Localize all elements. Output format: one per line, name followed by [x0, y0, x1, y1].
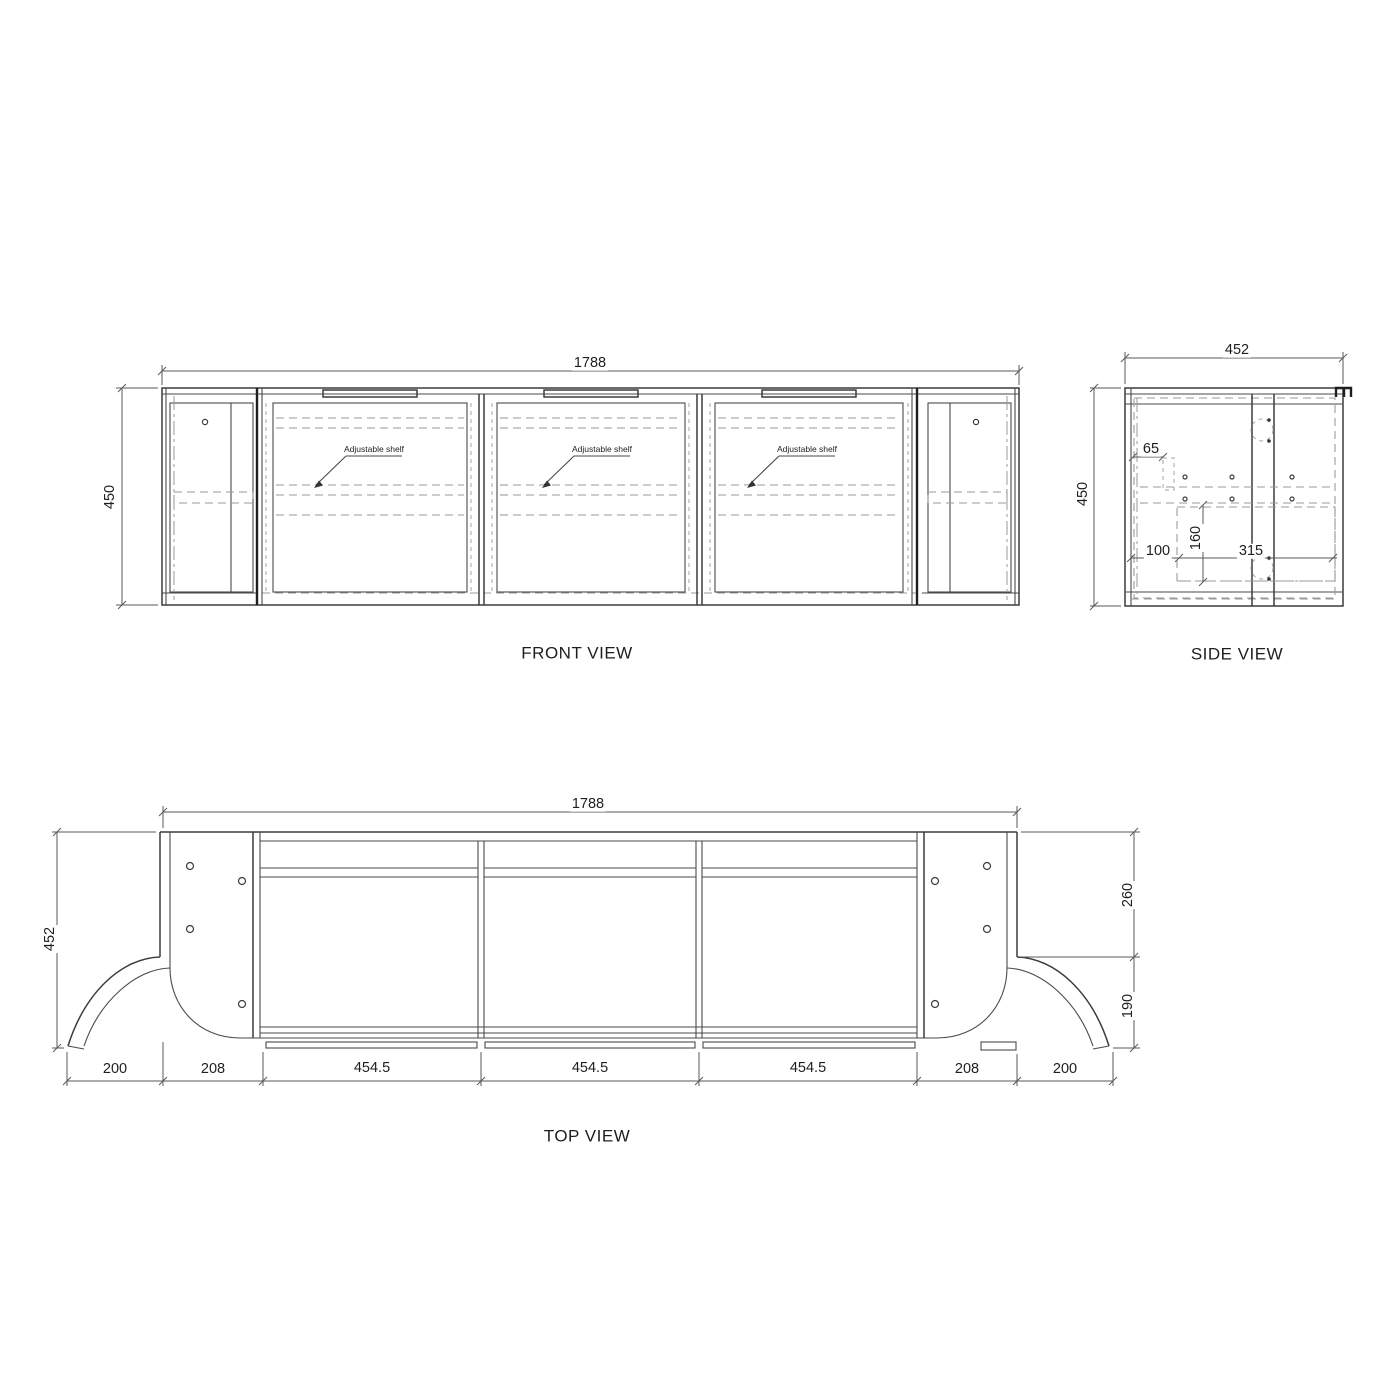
side-160-dim: 160	[1189, 524, 1204, 552]
side-view-title: SIDE VIEW	[1189, 646, 1285, 663]
top-depth-dim: 452	[43, 925, 58, 953]
top-right-upper-dim: 260	[1121, 881, 1136, 909]
side-65-dim: 65	[1141, 442, 1161, 457]
side-dimension-lines	[1090, 352, 1347, 610]
right-curved-arm	[1007, 957, 1109, 1049]
front-dimension-lines	[116, 365, 1023, 609]
top-bottom-dim-6: 208	[953, 1062, 981, 1077]
shelf-label-1: Adjustable shelf	[344, 445, 404, 454]
side-view-linework	[1090, 352, 1351, 610]
front-view-linework	[116, 365, 1023, 609]
shelf-leader-2	[542, 456, 630, 488]
top-left-end-panel	[160, 832, 246, 1038]
side-315-dim: 315	[1237, 544, 1265, 559]
top-bottom-dim-7: 200	[1051, 1062, 1079, 1077]
shelf-label-3: Adjustable shelf	[777, 445, 837, 454]
hinge-top	[1251, 418, 1273, 443]
front-door-1	[273, 390, 467, 592]
top-bottom-dim-2: 208	[199, 1062, 227, 1077]
left-curved-arm	[68, 957, 170, 1049]
top-bottom-dim-3: 454.5	[352, 1061, 392, 1076]
side-height-dim: 450	[1076, 480, 1091, 508]
top-dimension-lines	[52, 806, 1140, 1086]
front-view-title: FRONT VIEW	[519, 645, 634, 662]
front-width-dim: 1788	[572, 356, 608, 371]
side-width-dim: 452	[1223, 343, 1251, 358]
top-view-title: TOP VIEW	[542, 1128, 633, 1145]
front-left-end-panel	[166, 388, 253, 605]
top-right-lower-dim: 190	[1121, 992, 1136, 1020]
front-right-end-panel	[928, 388, 1015, 605]
front-door-3	[715, 390, 903, 592]
top-bottom-dim-4: 454.5	[570, 1061, 610, 1076]
drawing-canvas: 1788 450 Adjustable shelf Adjustable she…	[0, 0, 1400, 1400]
linework-svg	[0, 0, 1400, 1400]
hinge-bottom	[1251, 556, 1273, 581]
top-bottom-dim-5: 454.5	[788, 1061, 828, 1076]
front-door-2	[497, 390, 685, 592]
top-width-dim: 1788	[570, 797, 606, 812]
shelf-leader-3	[747, 456, 835, 488]
top-bottom-dim-1: 200	[101, 1062, 129, 1077]
side-100-dim: 100	[1144, 544, 1172, 559]
shelf-leader-1	[314, 456, 402, 488]
top-view-linework	[52, 806, 1140, 1086]
top-right-end-panel	[932, 832, 1018, 1038]
shelf-label-2: Adjustable shelf	[572, 445, 632, 454]
front-height-dim: 450	[103, 483, 118, 511]
